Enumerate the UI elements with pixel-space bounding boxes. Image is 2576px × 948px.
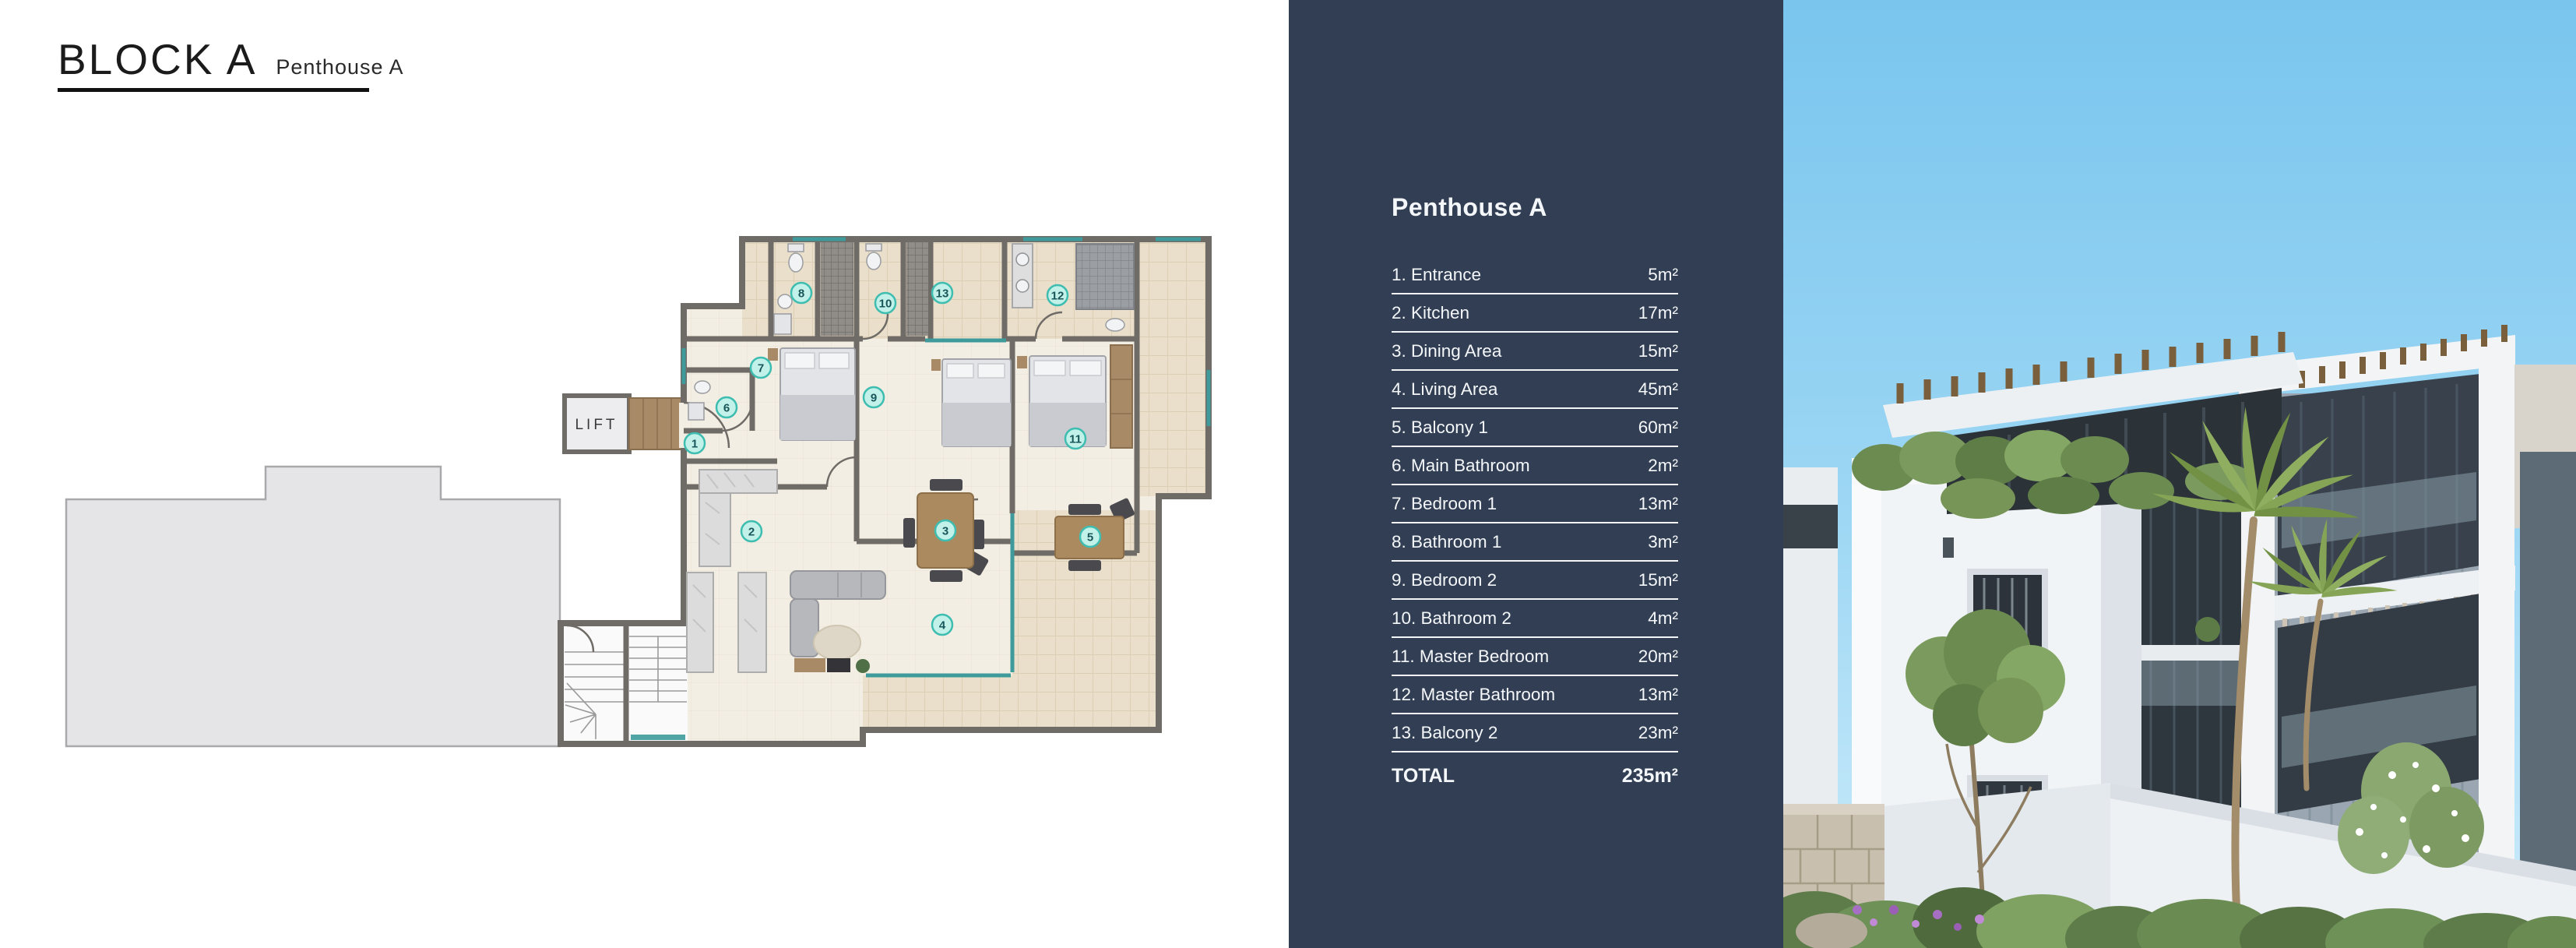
bed-bedroom-1 bbox=[768, 348, 855, 440]
area-row-value: 23m² bbox=[1638, 723, 1678, 743]
area-row-label: 9. Bedroom 2 bbox=[1392, 570, 1497, 590]
plan-marker-bedroom-2: 9 bbox=[864, 387, 884, 407]
total-row: TOTAL 235m² bbox=[1392, 752, 1678, 788]
title-underline bbox=[58, 88, 369, 92]
area-row-value: 60m² bbox=[1638, 418, 1678, 438]
plan-marker-dining-area: 3 bbox=[935, 520, 955, 541]
info-panel: Penthouse A 1. Entrance 5m² 2. Kitchen 1… bbox=[1289, 0, 1783, 948]
page-header: BLOCK A Penthouse A bbox=[58, 34, 404, 84]
plan-marker-master-bedroom: 11 bbox=[1065, 428, 1086, 449]
page-subtitle: Penthouse A bbox=[276, 55, 403, 79]
area-row-value: 5m² bbox=[1648, 265, 1678, 285]
area-row-value: 3m² bbox=[1648, 532, 1678, 552]
svg-text:6: 6 bbox=[723, 402, 730, 415]
svg-text:5: 5 bbox=[1087, 531, 1093, 544]
plan-marker-living-area: 4 bbox=[932, 615, 952, 635]
area-row: 8. Bathroom 1 3m² bbox=[1392, 523, 1678, 562]
area-row-label: 7. Bedroom 1 bbox=[1392, 494, 1497, 514]
entrance-deck bbox=[629, 398, 684, 449]
area-row-label: 10. Bathroom 2 bbox=[1392, 608, 1511, 629]
area-row: 1. Entrance 5m² bbox=[1392, 256, 1678, 294]
area-row: 6. Main Bathroom 2m² bbox=[1392, 447, 1678, 485]
svg-text:10: 10 bbox=[879, 298, 892, 311]
floor-plan: LIFT 12345678910111213 bbox=[47, 206, 1215, 779]
area-row-label: 8. Bathroom 1 bbox=[1392, 532, 1501, 552]
area-row: 9. Bedroom 2 15m² bbox=[1392, 562, 1678, 600]
plan-marker-balcony-1: 5 bbox=[1080, 527, 1100, 547]
plan-marker-bathroom-1: 8 bbox=[791, 283, 811, 303]
svg-text:4: 4 bbox=[939, 619, 946, 633]
building-photo-svg bbox=[1783, 0, 2576, 948]
area-row-label: 5. Balcony 1 bbox=[1392, 418, 1488, 438]
area-row-value: 15m² bbox=[1638, 570, 1678, 590]
area-row: 3. Dining Area 15m² bbox=[1392, 333, 1678, 371]
lift-label: LIFT bbox=[575, 417, 618, 433]
area-row: 13. Balcony 2 23m² bbox=[1392, 714, 1678, 752]
area-row-label: 4. Living Area bbox=[1392, 379, 1497, 400]
closet-hatch-1 bbox=[821, 242, 853, 336]
svg-text:7: 7 bbox=[758, 362, 764, 375]
area-row: 4. Living Area 45m² bbox=[1392, 371, 1678, 409]
area-row: 10. Bathroom 2 4m² bbox=[1392, 600, 1678, 638]
plan-marker-balcony-2: 13 bbox=[932, 283, 952, 303]
area-row-value: 13m² bbox=[1638, 685, 1678, 705]
svg-text:9: 9 bbox=[871, 392, 877, 405]
area-table: 1. Entrance 5m² 2. Kitchen 17m² 3. Dinin… bbox=[1392, 256, 1678, 788]
svg-text:8: 8 bbox=[798, 287, 804, 301]
svg-text:1: 1 bbox=[692, 438, 698, 451]
area-row-value: 4m² bbox=[1648, 608, 1678, 629]
area-row: 7. Bedroom 1 13m² bbox=[1392, 485, 1678, 523]
total-value: 235m² bbox=[1622, 765, 1678, 788]
area-row-label: 2. Kitchen bbox=[1392, 303, 1469, 323]
area-row-label: 1. Entrance bbox=[1392, 265, 1481, 285]
area-row-label: 6. Main Bathroom bbox=[1392, 456, 1530, 476]
area-row-value: 13m² bbox=[1638, 494, 1678, 514]
brochure-page: BLOCK A Penthouse A bbox=[0, 0, 2576, 948]
area-row-value: 20m² bbox=[1638, 647, 1678, 667]
plan-marker-master-bathroom: 12 bbox=[1047, 285, 1068, 305]
bed-bedroom-2 bbox=[931, 359, 1011, 446]
plan-marker-main-bathroom: 6 bbox=[716, 397, 737, 418]
area-row-label: 12. Master Bathroom bbox=[1392, 685, 1555, 705]
area-row-label: 13. Balcony 2 bbox=[1392, 723, 1497, 743]
area-row-value: 45m² bbox=[1638, 379, 1678, 400]
page-title: BLOCK A bbox=[58, 34, 257, 84]
area-row: 5. Balcony 1 60m² bbox=[1392, 409, 1678, 447]
area-row-label: 11. Master Bedroom bbox=[1392, 647, 1549, 667]
closet-hatch-2 bbox=[906, 242, 928, 336]
svg-text:2: 2 bbox=[748, 526, 755, 539]
total-label: TOTAL bbox=[1392, 765, 1455, 788]
svg-text:13: 13 bbox=[936, 287, 949, 301]
area-row: 2. Kitchen 17m² bbox=[1392, 294, 1678, 333]
plan-marker-bathroom-2: 10 bbox=[875, 293, 896, 313]
area-row: 12. Master Bathroom 13m² bbox=[1392, 676, 1678, 714]
svg-text:12: 12 bbox=[1051, 290, 1065, 303]
plan-marker-kitchen: 2 bbox=[741, 521, 762, 541]
roof-outline bbox=[66, 467, 560, 746]
plan-marker-bedroom-1: 7 bbox=[751, 358, 771, 378]
plan-marker-entrance: 1 bbox=[684, 433, 705, 453]
area-row-value: 17m² bbox=[1638, 303, 1678, 323]
building-photo bbox=[1783, 0, 2576, 948]
area-row-label: 3. Dining Area bbox=[1392, 341, 1501, 361]
area-row: 11. Master Bedroom 20m² bbox=[1392, 638, 1678, 676]
svg-text:11: 11 bbox=[1069, 433, 1082, 446]
floor-plan-svg: LIFT 12345678910111213 bbox=[47, 206, 1215, 779]
svg-text:3: 3 bbox=[942, 525, 948, 538]
panel-heading: Penthouse A bbox=[1392, 193, 1678, 222]
area-row-value: 15m² bbox=[1638, 341, 1678, 361]
area-row-value: 2m² bbox=[1648, 456, 1678, 476]
